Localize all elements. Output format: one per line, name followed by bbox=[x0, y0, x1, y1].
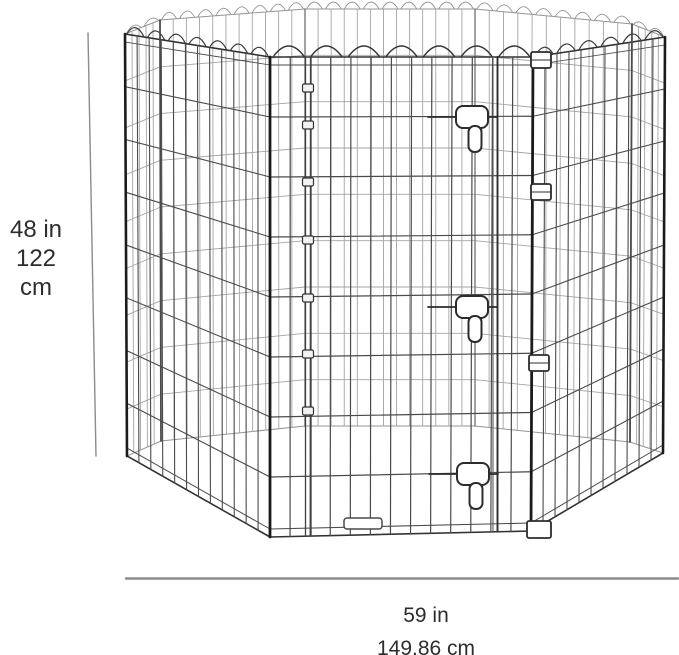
width-dimension-label: 59 in 149.86 cm bbox=[326, 599, 526, 655]
height-inches-text: 48 in bbox=[0, 215, 74, 244]
width-centimeters-text: 149.86 cm bbox=[326, 632, 526, 655]
width-inches-text: 59 in bbox=[326, 599, 526, 632]
height-dimension-label: 48 in 122 cm bbox=[0, 215, 74, 302]
height-centimeters-text: 122 cm bbox=[0, 244, 74, 302]
playpen-illustration bbox=[0, 0, 679, 655]
corner-posts bbox=[125, 20, 665, 537]
door-latch bbox=[429, 463, 498, 509]
door-latch bbox=[428, 296, 497, 342]
front-panels bbox=[125, 28, 665, 537]
product-dimension-diagram: 48 in 122 cm 59 in 149.86 cm bbox=[0, 0, 679, 655]
door-latch bbox=[428, 106, 497, 152]
